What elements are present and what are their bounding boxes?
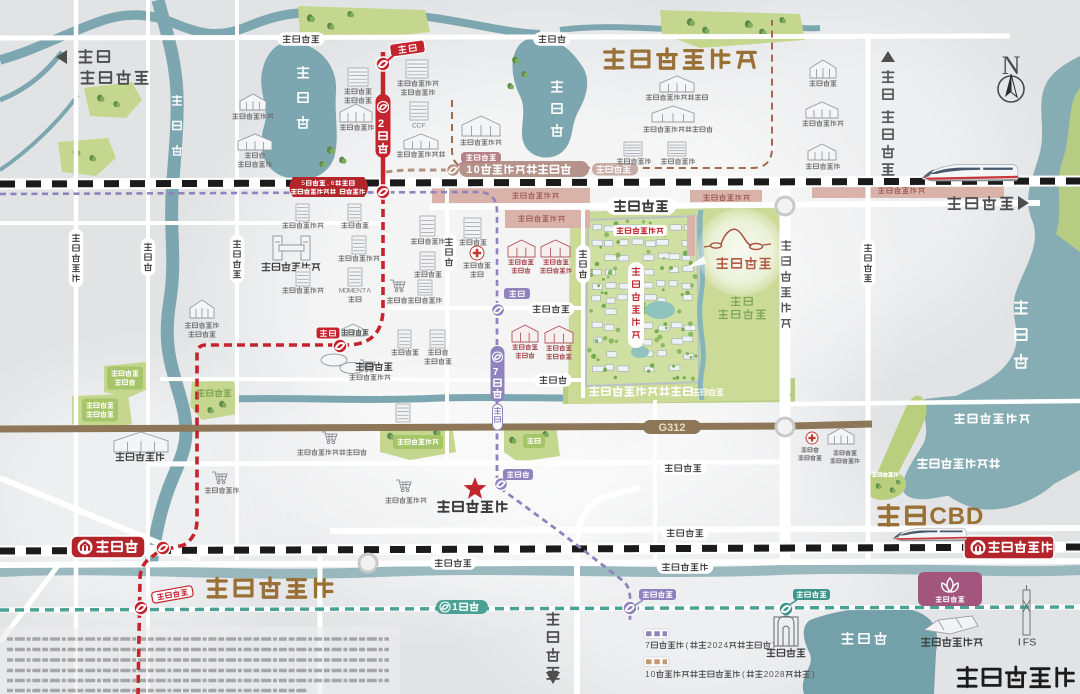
svg-text:B: B	[948, 503, 965, 530]
svg-text:2: 2	[764, 669, 769, 679]
svg-text:6: 6	[331, 180, 335, 187]
svg-text:7: 7	[493, 367, 499, 378]
svg-text:2: 2	[718, 640, 723, 650]
svg-text:1: 1	[452, 602, 458, 613]
svg-text:,: ,	[327, 180, 329, 187]
svg-text:D: D	[966, 503, 983, 530]
svg-text:1: 1	[645, 669, 650, 679]
svg-text:G312: G312	[659, 422, 686, 434]
svg-text:0: 0	[651, 669, 656, 679]
svg-text:4: 4	[723, 640, 728, 650]
svg-text:2: 2	[774, 669, 779, 679]
svg-text:2: 2	[707, 640, 712, 650]
svg-text:1: 1	[466, 164, 472, 176]
svg-text:8: 8	[780, 669, 785, 679]
svg-text:S: S	[1029, 637, 1036, 649]
svg-text:2: 2	[378, 118, 384, 130]
svg-text:0: 0	[713, 640, 718, 650]
svg-text:): )	[812, 669, 815, 679]
svg-text:I: I	[1018, 637, 1021, 649]
svg-text:7: 7	[645, 640, 650, 650]
svg-text:0: 0	[769, 669, 774, 679]
svg-text:0: 0	[474, 164, 480, 176]
svg-text:(: (	[686, 640, 689, 650]
svg-text:C: C	[929, 503, 946, 530]
svg-text:(: (	[742, 669, 745, 679]
svg-text:A: A	[366, 288, 371, 295]
svg-text:5: 5	[301, 180, 305, 187]
svg-text:F: F	[421, 123, 425, 130]
